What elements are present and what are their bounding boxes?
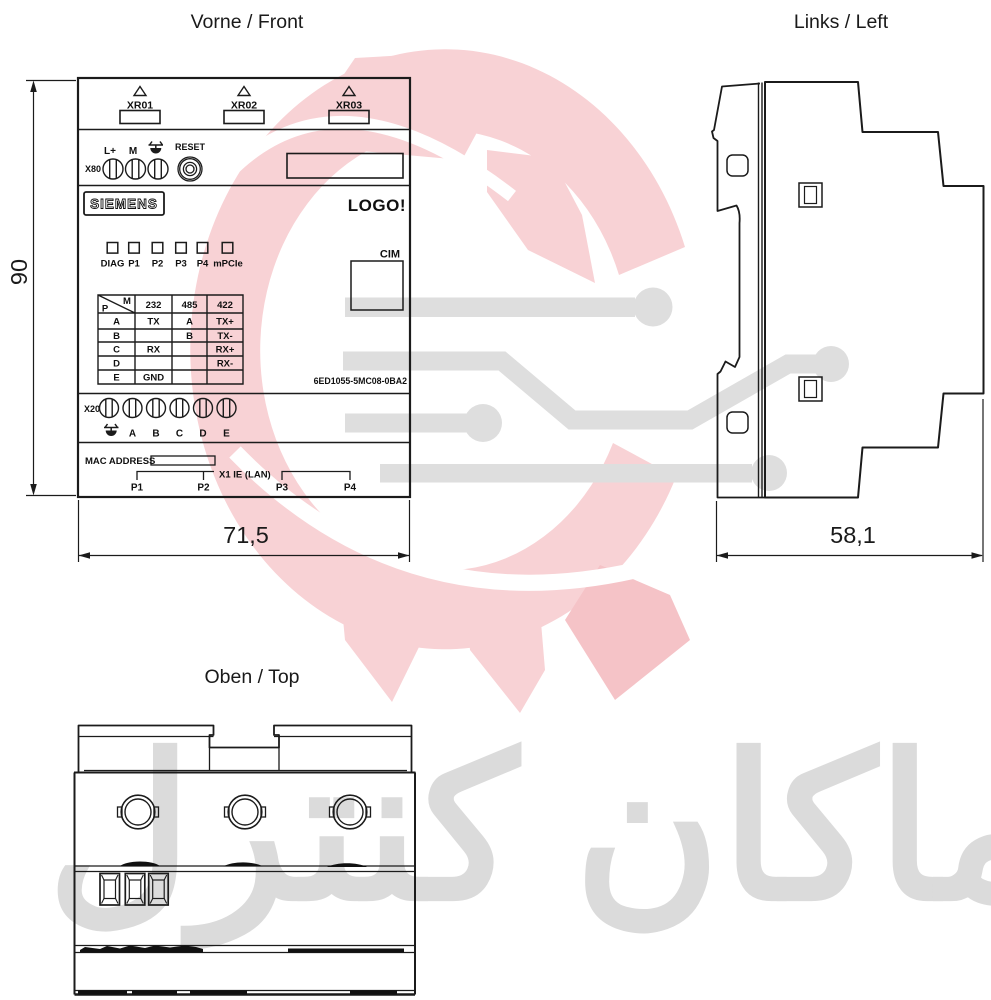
port-p1-label: P1 — [131, 483, 144, 494]
band-2-contact-marks — [80, 946, 404, 953]
table-422-b: TX- — [217, 331, 232, 342]
m-label: M — [129, 146, 137, 157]
table-422-c: RX+ — [216, 345, 235, 356]
din-rail-plate-lines — [759, 83, 763, 498]
table-pin-d: D — [113, 359, 120, 370]
port-p3-label: P3 — [276, 483, 289, 494]
reset-label: RESET — [175, 142, 206, 152]
trace-pad-1 — [634, 288, 673, 327]
lan-label: X1 IE (LAN) — [219, 470, 271, 481]
led-p3 — [176, 243, 187, 254]
table-col-232: 232 — [146, 300, 162, 311]
x20-label-d: D — [199, 429, 206, 440]
ground-icon — [104, 424, 119, 436]
siemens-logo-text: SIEMENS — [90, 197, 158, 212]
led-label-p1: P1 — [128, 259, 140, 270]
left-view — [712, 82, 984, 498]
table-pin-a: A — [113, 317, 120, 328]
left-view-title: Links / Left — [794, 11, 889, 33]
front-view-title: Vorne / Front — [191, 11, 304, 33]
watermark-circuit-traces — [343, 288, 849, 492]
technical-drawing: ماكان كنترل Vorne / Front Links / Left O… — [0, 0, 991, 1000]
x20-label-a: A — [129, 429, 136, 440]
side-window-top — [799, 183, 822, 207]
led-label-p3: P3 — [175, 259, 187, 270]
led-label-diag: DIAG — [101, 259, 125, 270]
table-422-d: RX- — [217, 359, 233, 370]
xr03-label: XR03 — [336, 100, 362, 112]
dimension-width-value: 71,5 — [223, 522, 269, 548]
din-clip-hole-bottom — [727, 412, 748, 433]
table-corner-p: P — [102, 304, 109, 315]
table-232-c: RX — [147, 345, 161, 356]
ground-icon — [149, 142, 164, 154]
table-corner-m: M — [123, 296, 131, 307]
x80-terminals — [103, 159, 168, 179]
x20-label: X20 — [84, 404, 100, 414]
table-pin-c: C — [113, 345, 120, 356]
x20-label-e: E — [223, 429, 230, 440]
watermark: ماكان كنترل — [47, 49, 991, 950]
xr01-port — [120, 111, 160, 124]
dimension-depth-value: 58,1 — [830, 522, 876, 548]
pin-table: M P 232 485 422 A B C D E TX RX GND A B … — [98, 295, 243, 384]
table-pin-e: E — [113, 373, 119, 384]
led-p1 — [129, 243, 140, 254]
mac-address-field — [151, 456, 215, 465]
logo-product-text: LOGO! — [348, 196, 406, 215]
dimension-height-value: 90 — [6, 259, 32, 285]
led-label-p4: P4 — [197, 259, 209, 270]
led-label-mpcie: mPCIe — [213, 259, 243, 270]
trace-pad-3 — [464, 404, 502, 442]
trace-bar-2 — [343, 361, 828, 420]
table-col-422: 422 — [217, 300, 233, 311]
left-body-outline — [765, 82, 984, 498]
port-p2-label: P2 — [197, 483, 210, 494]
led-label-p2: P2 — [152, 259, 164, 270]
x20-label-c: C — [176, 429, 183, 440]
table-485-b: B — [186, 331, 193, 342]
table-pin-b: B — [113, 331, 120, 342]
lplus-label: L+ — [104, 146, 116, 157]
port-p4-label: P4 — [344, 483, 357, 494]
watermark-gear-logo — [190, 49, 690, 713]
xr01-triangle-icon — [134, 87, 146, 96]
table-col-485: 485 — [182, 300, 199, 311]
reset-button — [178, 157, 202, 181]
din-clip-outline — [712, 84, 765, 498]
xr01-label: XR01 — [127, 100, 153, 112]
dimension-height: 90 — [6, 81, 76, 496]
part-number: 6ED1055-5MC08-0BA2 — [314, 376, 407, 386]
mac-address-label: MAC ADDRESS — [85, 456, 155, 467]
table-232-a: TX — [147, 317, 160, 328]
xr02-triangle-icon — [238, 87, 250, 96]
table-232-e: GND — [143, 373, 164, 384]
cim-label: CIM — [380, 249, 400, 261]
led-p2 — [152, 243, 163, 254]
led-diag — [107, 243, 118, 254]
drawing-page: ماكان كنترل Vorne / Front Links / Left O… — [0, 0, 991, 1000]
trace-pad-4 — [751, 455, 787, 491]
xr02-label: XR02 — [231, 100, 257, 112]
trace-bar-3 — [345, 414, 467, 433]
trace-bar-4 — [380, 464, 752, 483]
x20-label-b: B — [152, 429, 159, 440]
top-view-title: Oben / Top — [204, 666, 299, 688]
x80-label: X80 — [85, 164, 101, 174]
trace-bar-1 — [345, 298, 635, 318]
table-422-a: TX+ — [216, 317, 234, 328]
xr02-port — [224, 111, 264, 124]
side-window-bottom — [799, 377, 822, 401]
watermark-arabic-text: ماكان كنترل — [47, 718, 991, 950]
din-clip-hole-top — [727, 155, 748, 176]
table-485-a: A — [186, 317, 193, 328]
gear-tooth-bottom-2 — [465, 590, 545, 713]
